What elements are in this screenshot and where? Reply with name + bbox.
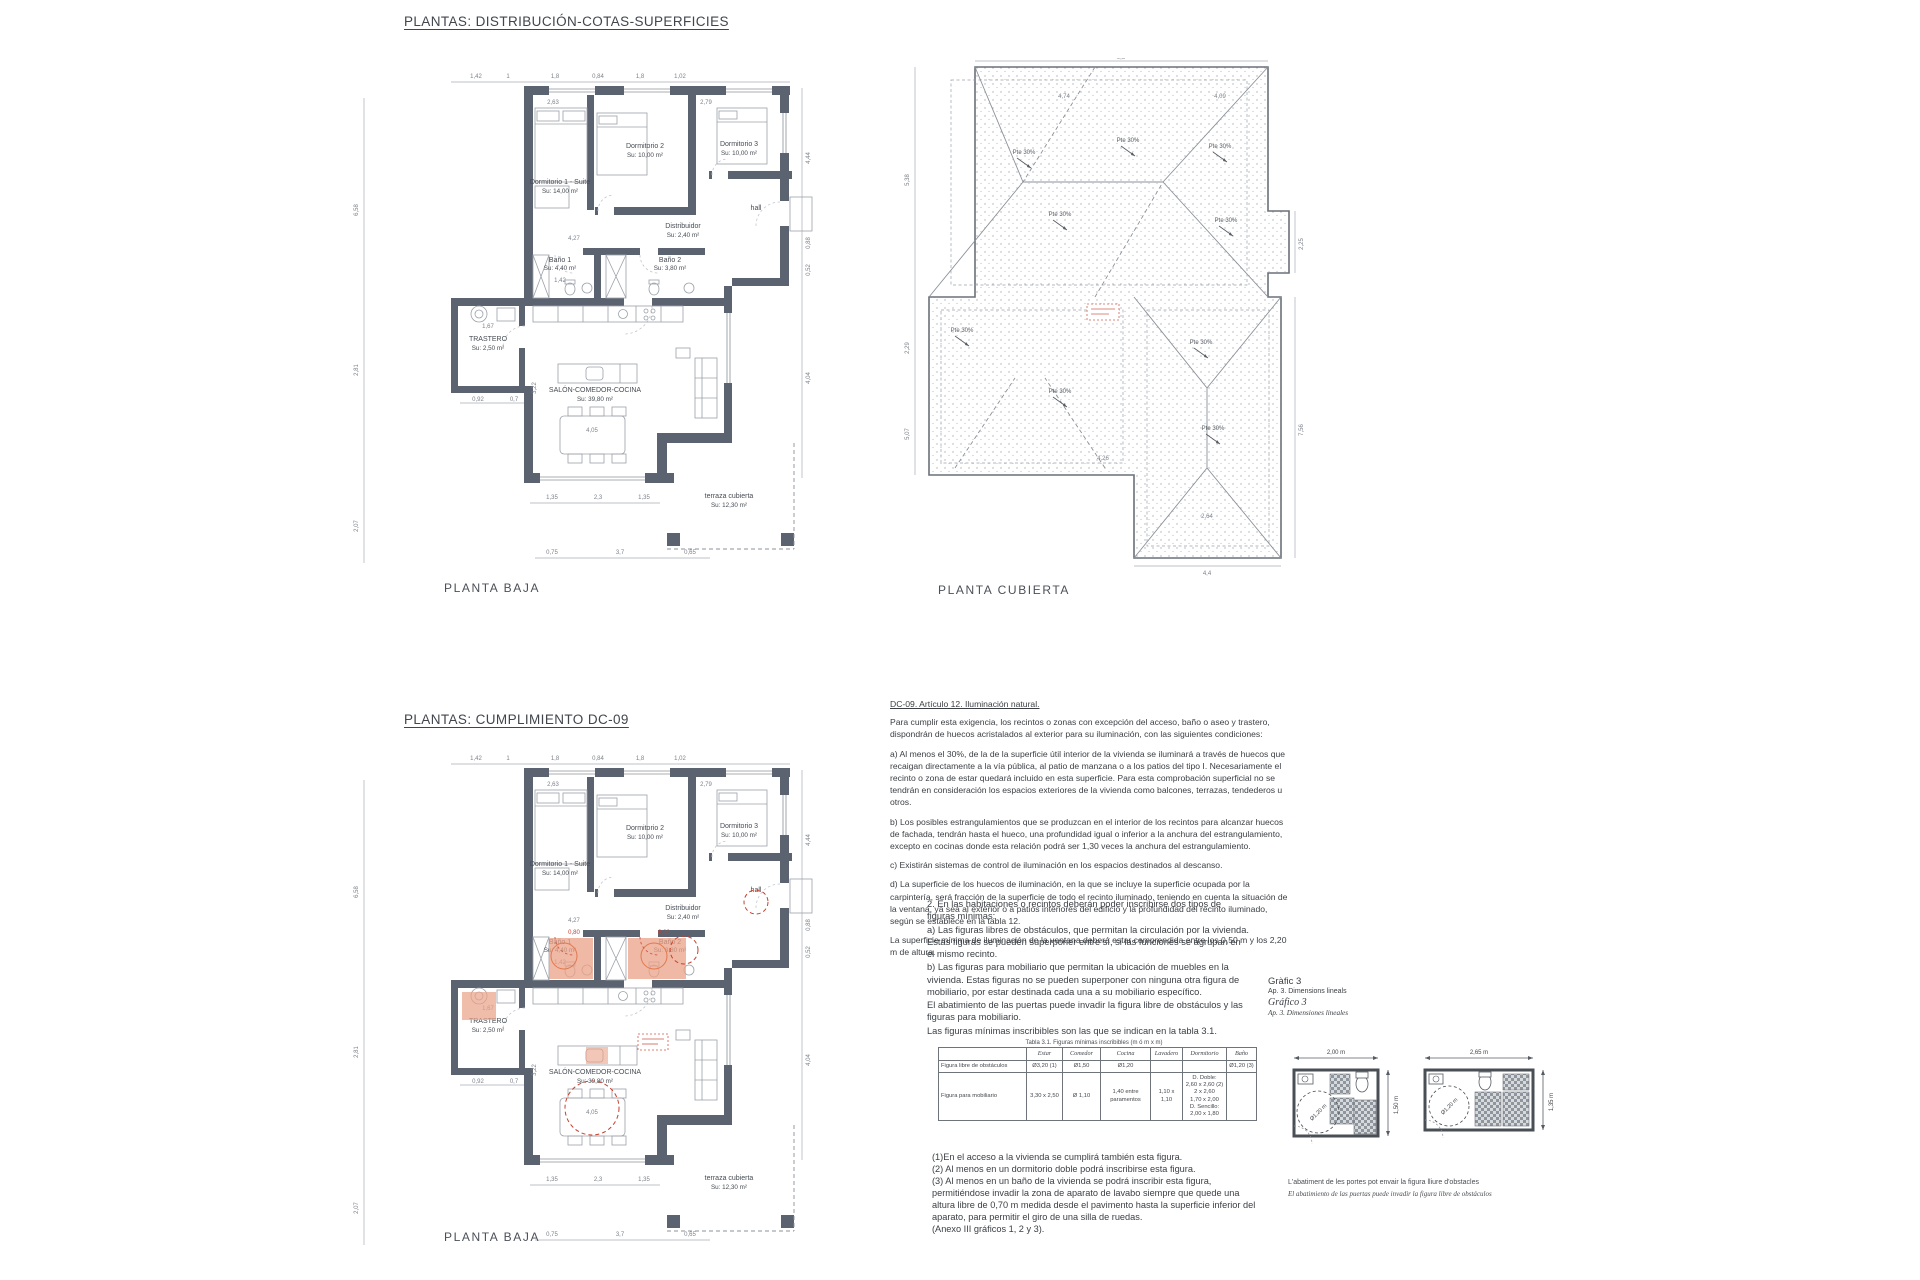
table-3-1-wrap: Tabla 3.1. Figuras mínimas inscribibles …	[938, 1040, 1250, 1121]
dim-label: 2,63	[547, 100, 559, 106]
red-note-box	[638, 1034, 668, 1050]
room-area-salon: Su: 39,80 m²	[577, 396, 613, 403]
regulation-paragraph: b) Los posibles estrangulamientos que se…	[890, 816, 1292, 853]
rules-item-a: a) Las figuras libres de obstáculos, que…	[927, 924, 1249, 961]
dim-label: 1,35	[546, 495, 558, 501]
bathroom-diagram-1: 2,00 m 1,50 m Ø1,20 m	[1280, 1048, 1405, 1163]
cell	[1227, 1072, 1257, 1120]
cell: Ø1,20 (3)	[1227, 1060, 1257, 1072]
dim-label: 4,27	[568, 236, 580, 242]
dim-label: 4,09	[1214, 94, 1226, 100]
cell: Ø 1,10	[1063, 1072, 1101, 1120]
dim-label: 0,88	[806, 237, 812, 249]
dim-label: 2,79	[700, 100, 712, 106]
dim-label: 0,92	[472, 397, 484, 403]
room-area-terraza: Su: 12,30 m²	[711, 502, 747, 509]
dim-label: 2,07	[354, 520, 360, 532]
rules-note-2: Las figuras mínimas inscribibles son las…	[927, 1025, 1249, 1037]
regulation-title: DC-09. Artículo 12. Iluminación natural.	[890, 698, 1292, 710]
floor-plan-base: Dormitorio 1 - Suite Su: 14,00 m² Dormit…	[354, 74, 812, 563]
cell: D. Doble: 2,60 x 2,60 (2) 2 x 2,60 1,70 …	[1183, 1072, 1227, 1120]
cell: Ø3,20 (1)	[1027, 1060, 1063, 1072]
caption-planta-baja-1: PLANTA BAJA	[444, 581, 540, 595]
table-title: Tabla 3.1. Figuras mínimas inscribibles …	[938, 1040, 1250, 1046]
room-label-trastero: TRASTERO	[469, 336, 508, 343]
room-label-terraza: terraza cubierta	[705, 493, 754, 500]
table-row: Figura libre de obstáculos Ø3,20 (1) Ø1,…	[939, 1060, 1257, 1072]
roof-center-annotation	[1087, 304, 1119, 320]
slope-label: Pte 30%	[1049, 389, 1072, 395]
slope-label: Pte 30%	[951, 328, 974, 334]
grafico3-subtitle-es: Ap. 3. Dimensiones lineales	[1268, 1009, 1348, 1018]
cell: Ø1,20	[1101, 1060, 1151, 1072]
dim-label: 6,58	[354, 204, 360, 216]
bathroom-diagram-2: 2,65 m 1,35 m Ø1,20 m	[1415, 1048, 1560, 1163]
regulation-paragraph: c) Existirán sistemas de control de ilum…	[890, 859, 1292, 871]
grafico3-caption-es: El abatimiento de las puertas puede inva…	[1288, 1189, 1588, 1200]
grafico3-title-es: Gráfico 3	[1268, 997, 1348, 1010]
room-label-hall: hall	[751, 205, 762, 212]
door-clearance-label: 0,80	[658, 930, 670, 936]
caption-planta-baja-2: PLANTA BAJA	[444, 1230, 540, 1244]
footnote-4: (Anexo III gráficos 1, 2 y 3).	[932, 1224, 1256, 1236]
dim-label: 2,25	[1299, 238, 1305, 250]
room-label-dormitorio3: Dormitorio 3	[720, 141, 758, 148]
rules-intro: 2. En las habitaciones o recintos deberá…	[927, 898, 1249, 923]
cell	[1151, 1060, 1183, 1072]
slope-label: Pte 30%	[1202, 426, 1225, 432]
footnotes-block: (1)En el acceso a la vivienda se cumplir…	[932, 1152, 1256, 1236]
grafico3-labels: Gràfic 3 Ap. 3. Dimensions lineals Gráfi…	[1268, 976, 1348, 1018]
room-label-bano1: Baño 1	[549, 257, 571, 264]
dim-label: 4,04	[806, 372, 812, 384]
dim-label: 1,35	[638, 495, 650, 501]
mobiliario-figure-cocina	[586, 1047, 608, 1064]
section-title-distribution: PLANTAS: DISTRIBUCIÓN-COTAS-SUPERFICIES	[404, 14, 729, 29]
cell	[1183, 1060, 1227, 1072]
dim-label: 4,05	[586, 428, 598, 434]
dim-label: 2,64	[1201, 514, 1213, 520]
col-header-bano: Baño	[1227, 1048, 1257, 1061]
regulation-paragraph: Para cumplir esta exigencia, los recinto…	[890, 716, 1292, 740]
dim-label: 0,52	[806, 264, 812, 276]
grafico3-caption-va: L'abatiment de les portes pot envair la …	[1288, 1178, 1588, 1189]
col-header-estar: Estar	[1027, 1048, 1063, 1061]
dim-label: 2,00 m	[1327, 1050, 1345, 1056]
dim-label: 1,42	[554, 278, 566, 284]
slope-label: Pte 30%	[1049, 212, 1072, 218]
dim-label: 5,07	[905, 428, 911, 440]
caption-planta-cubierta: PLANTA CUBIERTA	[938, 583, 1070, 597]
roof-plan: Pte 30% Pte 30% Pte 30% Pte 30% Pte 30% …	[895, 58, 1395, 578]
dim-label: 1,42	[470, 74, 482, 80]
rules-note-1: El abatimiento de las puertas puede inva…	[927, 999, 1249, 1024]
dim-label: 2,65 m	[1470, 1050, 1488, 1056]
figures-rules-block: 2. En las habitaciones o recintos deberá…	[927, 898, 1249, 1037]
cell: 1,40 entre paramentos	[1101, 1072, 1151, 1120]
room-label-salon: SALÓN-COMEDOR-COCINA	[549, 385, 642, 394]
col-header-comedor: Comedor	[1063, 1048, 1101, 1061]
slope-label: Pte 30%	[1013, 150, 1036, 156]
row-header-figura-libre: Figura libre de obstáculos	[939, 1060, 1027, 1072]
row-header-figura-mobiliario: Figura para mobiliario	[939, 1072, 1027, 1120]
dim-label: 2,81	[354, 364, 360, 376]
dim-label: 0,7	[510, 397, 519, 403]
room-area-distribuidor: Su: 2,40 m²	[667, 232, 700, 239]
dim-label: 7,56	[1299, 424, 1305, 436]
room-area-dormitorio2: Su: 10,00 m²	[627, 152, 663, 159]
grafico3-subtitle-va: Ap. 3. Dimensions lineals	[1268, 988, 1348, 997]
room-label-distribuidor: Distribuidor	[665, 223, 701, 230]
dim-label: 0,75	[546, 550, 558, 556]
room-label-dormitorio1: Dormitorio 1 - Suite	[530, 179, 590, 186]
section-title-compliance: PLANTAS: CUMPLIMIENTO DC-09	[404, 712, 629, 727]
room-label-dormitorio2: Dormitorio 2	[626, 143, 664, 150]
grafico3-title-va: Gràfic 3	[1268, 976, 1348, 988]
footnote-1: (1)En el acceso a la vivienda se cumplir…	[932, 1152, 1256, 1164]
col-header-lavadero: Lavadero	[1151, 1048, 1183, 1061]
mobiliario-figure-bano2	[628, 938, 686, 979]
dim-label: 0,65	[684, 550, 696, 556]
dim-label: 1,8	[636, 74, 645, 80]
cell: 1,10 x 1,10	[1151, 1072, 1183, 1120]
dim-label: 0,84	[592, 74, 604, 80]
dim-label: 1,35 m	[1549, 1093, 1555, 1111]
door-clearance-label: 0,80	[568, 930, 580, 936]
slope-label: Pte 30%	[1209, 144, 1232, 150]
cell: 3,30 x 2,50	[1027, 1072, 1063, 1120]
dim-label: 4,4	[1203, 571, 1212, 577]
grafico3-caption: L'abatiment de les portes pot envair la …	[1288, 1178, 1588, 1199]
dim-label: 3,22	[532, 382, 538, 394]
col-header-dormitorio: Dormitorio	[1183, 1048, 1227, 1061]
room-area-bano2: Su: 3,80 m²	[654, 265, 687, 272]
room-area-bano1: Su: 4,40 m²	[544, 265, 577, 272]
slope-label: Pte 30%	[1190, 340, 1213, 346]
drawing-sheet: PLANTAS: DISTRIBUCIÓN-COTAS-SUPERFICIES	[0, 0, 1920, 1280]
mobiliario-figure-bano1	[549, 938, 593, 979]
table-corner-cell	[939, 1048, 1027, 1061]
footnote-2: (2) Al menos en un dormitorio doble podr…	[932, 1164, 1256, 1176]
entrance-landing	[790, 197, 812, 231]
furniture	[471, 108, 767, 463]
floor-plan-compliance: 0,80 0,80	[340, 740, 850, 1260]
dim-label: 2,29	[905, 342, 911, 354]
dim-label: 1,67	[482, 324, 494, 330]
dim-label: 9,8	[1117, 58, 1126, 61]
dim-label: 4,26	[1097, 456, 1109, 462]
mobiliario-figure-trastero	[462, 992, 496, 1020]
dim-label: 1,8	[551, 74, 560, 80]
room-area-trastero: Su: 2,50 m²	[472, 345, 505, 352]
floor-plan-planta-baja: Dormitorio 1 - Suite Su: 14,00 m² Dormit…	[340, 58, 850, 578]
regulation-paragraph: a) Al menos el 30%, de la de la superfic…	[890, 748, 1292, 809]
slope-label: Pte 30%	[1117, 138, 1140, 144]
table-row: Figura para mobiliario 3,30 x 2,50 Ø 1,1…	[939, 1072, 1257, 1120]
footnote-3: (3) Al menos en un baño de la vivienda s…	[932, 1176, 1256, 1224]
dim-label: 1,50 m	[1394, 1096, 1400, 1114]
room-label-bano2: Baño 2	[659, 257, 681, 264]
dim-label: 2,3	[594, 495, 603, 501]
dim-label: 5,38	[905, 174, 911, 186]
room-area-dormitorio1: Su: 14,00 m²	[542, 188, 578, 195]
table-3-1: Estar Comedor Cocina Lavadero Dormitorio…	[938, 1047, 1257, 1121]
col-header-cocina: Cocina	[1101, 1048, 1151, 1061]
room-area-dormitorio3: Su: 10,00 m²	[721, 150, 757, 157]
dim-label: 4,44	[806, 152, 812, 164]
cell: Ø1,50	[1063, 1060, 1101, 1072]
slope-label: Pte 30%	[1215, 218, 1238, 224]
dim-label: 1,02	[674, 74, 686, 80]
dim-label: 4,74	[1058, 94, 1070, 100]
rules-item-b: b) Las figuras para mobiliario que permi…	[927, 961, 1249, 998]
dim-label: 1	[506, 74, 510, 80]
dim-label: 3,7	[616, 550, 625, 556]
